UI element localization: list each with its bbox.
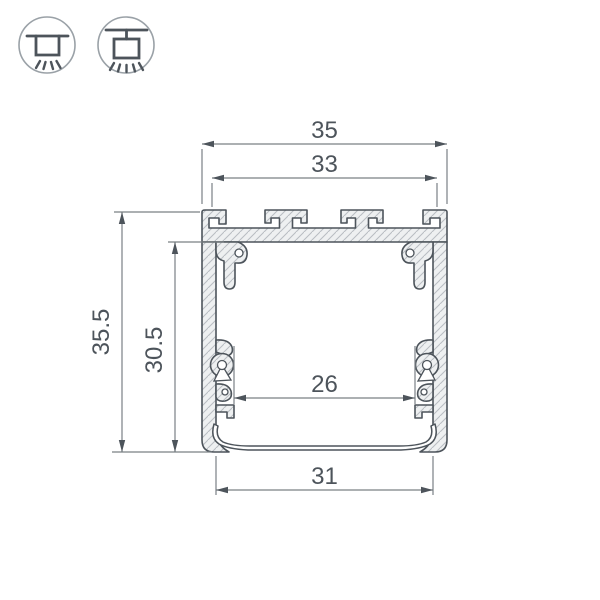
- surface-mount-icon: [19, 17, 75, 73]
- dimension-arrowheads: [119, 141, 447, 493]
- drawing-canvas: 35 33 35.5 30.5 26 31: [0, 0, 600, 600]
- top-plate-with-hooks: [202, 210, 447, 242]
- profile-drawing: 35 33 35.5 30.5 26 31: [0, 0, 600, 600]
- dim-top-slot-width-label: 33: [311, 151, 338, 178]
- left-top-clip: [216, 242, 247, 289]
- right-diffuser-ledge: [415, 405, 433, 418]
- dim-inner-width-label: 26: [311, 371, 338, 398]
- diffuser-plate: [213, 424, 436, 450]
- pendant-mount-icon: [98, 17, 154, 73]
- light-rays: [36, 61, 61, 69]
- dim-outer-width-label: 35: [311, 117, 338, 144]
- icon-circle: [19, 17, 75, 73]
- dimension-lines: [112, 144, 447, 495]
- dim-inner-height-label: 30.5: [141, 327, 168, 374]
- profile-cross-section: [202, 210, 447, 452]
- right-top-clip: [402, 242, 433, 289]
- dim-bottom-width-label: 31: [311, 463, 338, 490]
- left-diffuser-ledge: [216, 405, 234, 418]
- dim-outer-height-label: 35.5: [88, 309, 115, 356]
